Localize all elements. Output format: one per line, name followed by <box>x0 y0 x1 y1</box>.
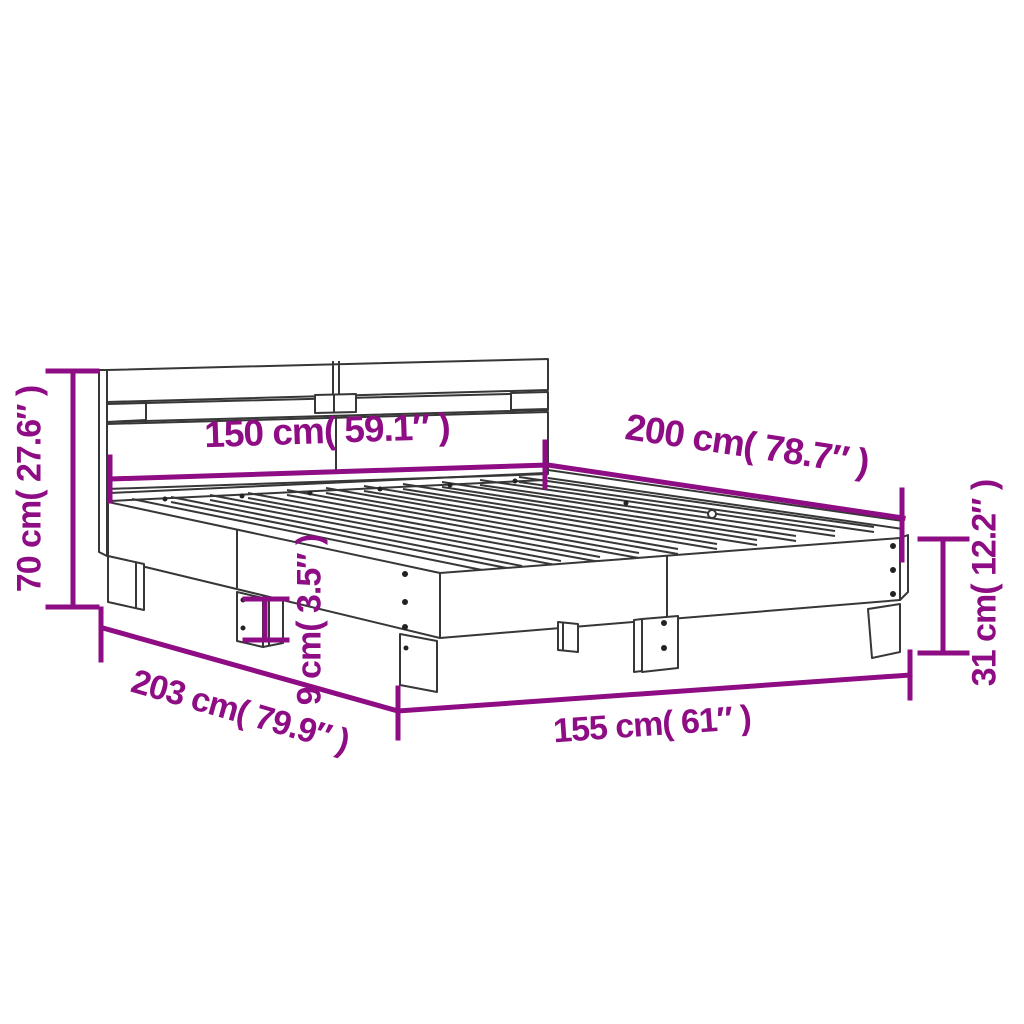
headboard-leg <box>108 556 144 610</box>
dim-line-headboard-height <box>48 371 97 607</box>
foot-far-leg <box>868 604 900 658</box>
side-rails <box>108 502 908 638</box>
mid-far-leg <box>558 622 578 652</box>
foot-mid-leg <box>634 619 642 672</box>
front-corner-leg <box>400 634 437 692</box>
dim-line-frame-height <box>920 539 967 653</box>
bed-frame-illustration <box>0 0 1024 1024</box>
dim-label-bed-width: 150 cm( 59.1″ ) <box>204 406 451 457</box>
bed-frame-drawing <box>99 359 908 692</box>
dim-label-frame-height: 31 cm( 12.2″ ) <box>966 480 1005 686</box>
dimension-diagram: 70 cm( 27.6″ ) 150 cm( 59.1″ ) 200 cm( 7… <box>0 0 1024 1024</box>
dim-label-slat-frame-height: 9 cm( 3.5″ ) <box>291 535 330 706</box>
dim-label-headboard-height: 70 cm( 27.6″ ) <box>11 386 50 592</box>
rail-hole <box>708 510 716 518</box>
